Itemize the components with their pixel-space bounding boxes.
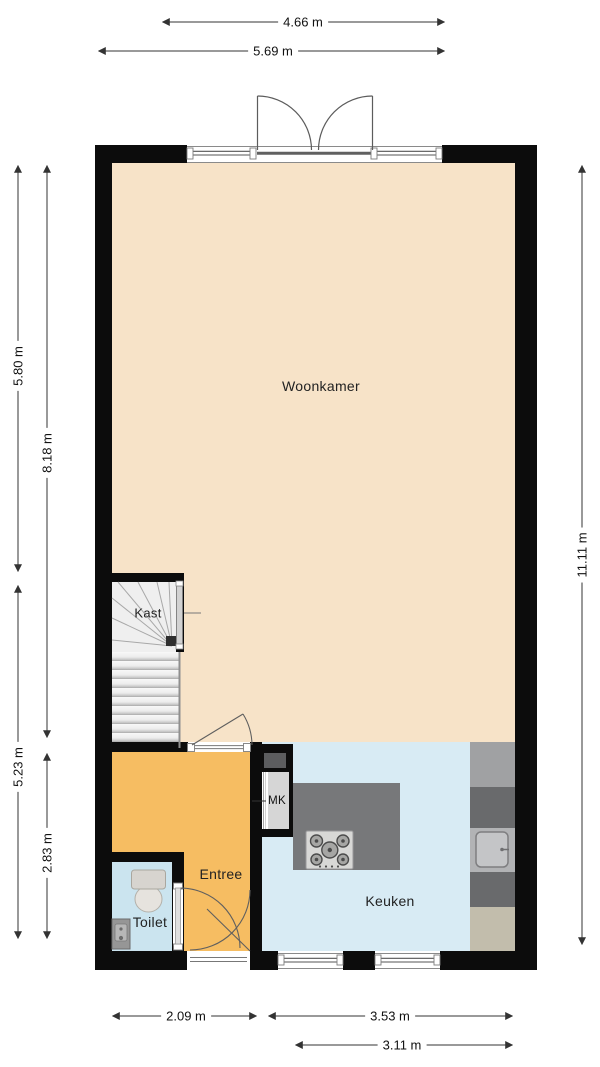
kitchen-sink-icon <box>476 832 509 867</box>
dimension-lines <box>18 22 582 1045</box>
room-label-toilet: Toilet <box>133 914 167 930</box>
door-swing-entree-woonkamer <box>192 714 252 745</box>
dimension-label-top-inner: 4.66 m <box>278 14 328 31</box>
dimension-label-left-lower: 5.23 m <box>10 742 27 792</box>
dimension-label-left-upper: 5.80 m <box>10 341 27 391</box>
dimension-label-top-outer: 5.69 m <box>248 43 298 60</box>
toilet-icon <box>132 870 166 912</box>
dimension-label-bottom-keuken-inner: 3.11 m <box>378 1037 427 1054</box>
dimension-label-bottom-entree: 2.09 m <box>161 1008 211 1025</box>
window-glazing-bottom <box>281 958 437 962</box>
window-glazing-top <box>190 151 440 155</box>
double-garden-doors-icon <box>258 96 373 150</box>
dimension-label-left-bottom: 2.83 m <box>39 828 56 878</box>
dimension-label-right-full: 11.11 m <box>574 527 591 582</box>
door-swing-front-door <box>190 890 250 951</box>
kast-door-icon <box>176 581 201 649</box>
door-swing-toilet <box>176 888 241 948</box>
dimension-label-bottom-keuken-outer: 3.53 m <box>365 1008 415 1025</box>
hand-basin-icon <box>112 919 130 949</box>
room-label-woonkamer: Woonkamer <box>282 378 360 394</box>
room-label-kast: Kast <box>134 606 161 621</box>
dimension-label-left-full: 8.18 m <box>39 428 56 478</box>
room-label-entree: Entree <box>199 866 242 882</box>
room-label-keuken: Keuken <box>365 893 414 909</box>
floorplan-linework <box>0 0 600 1067</box>
gas-hob-icon <box>306 831 353 869</box>
floorplan-page: Woonkamer Kast Entree Toilet Keuken MK 4… <box>0 0 600 1067</box>
room-label-meterkast: MK <box>268 795 286 807</box>
door-thresholds <box>190 746 247 962</box>
